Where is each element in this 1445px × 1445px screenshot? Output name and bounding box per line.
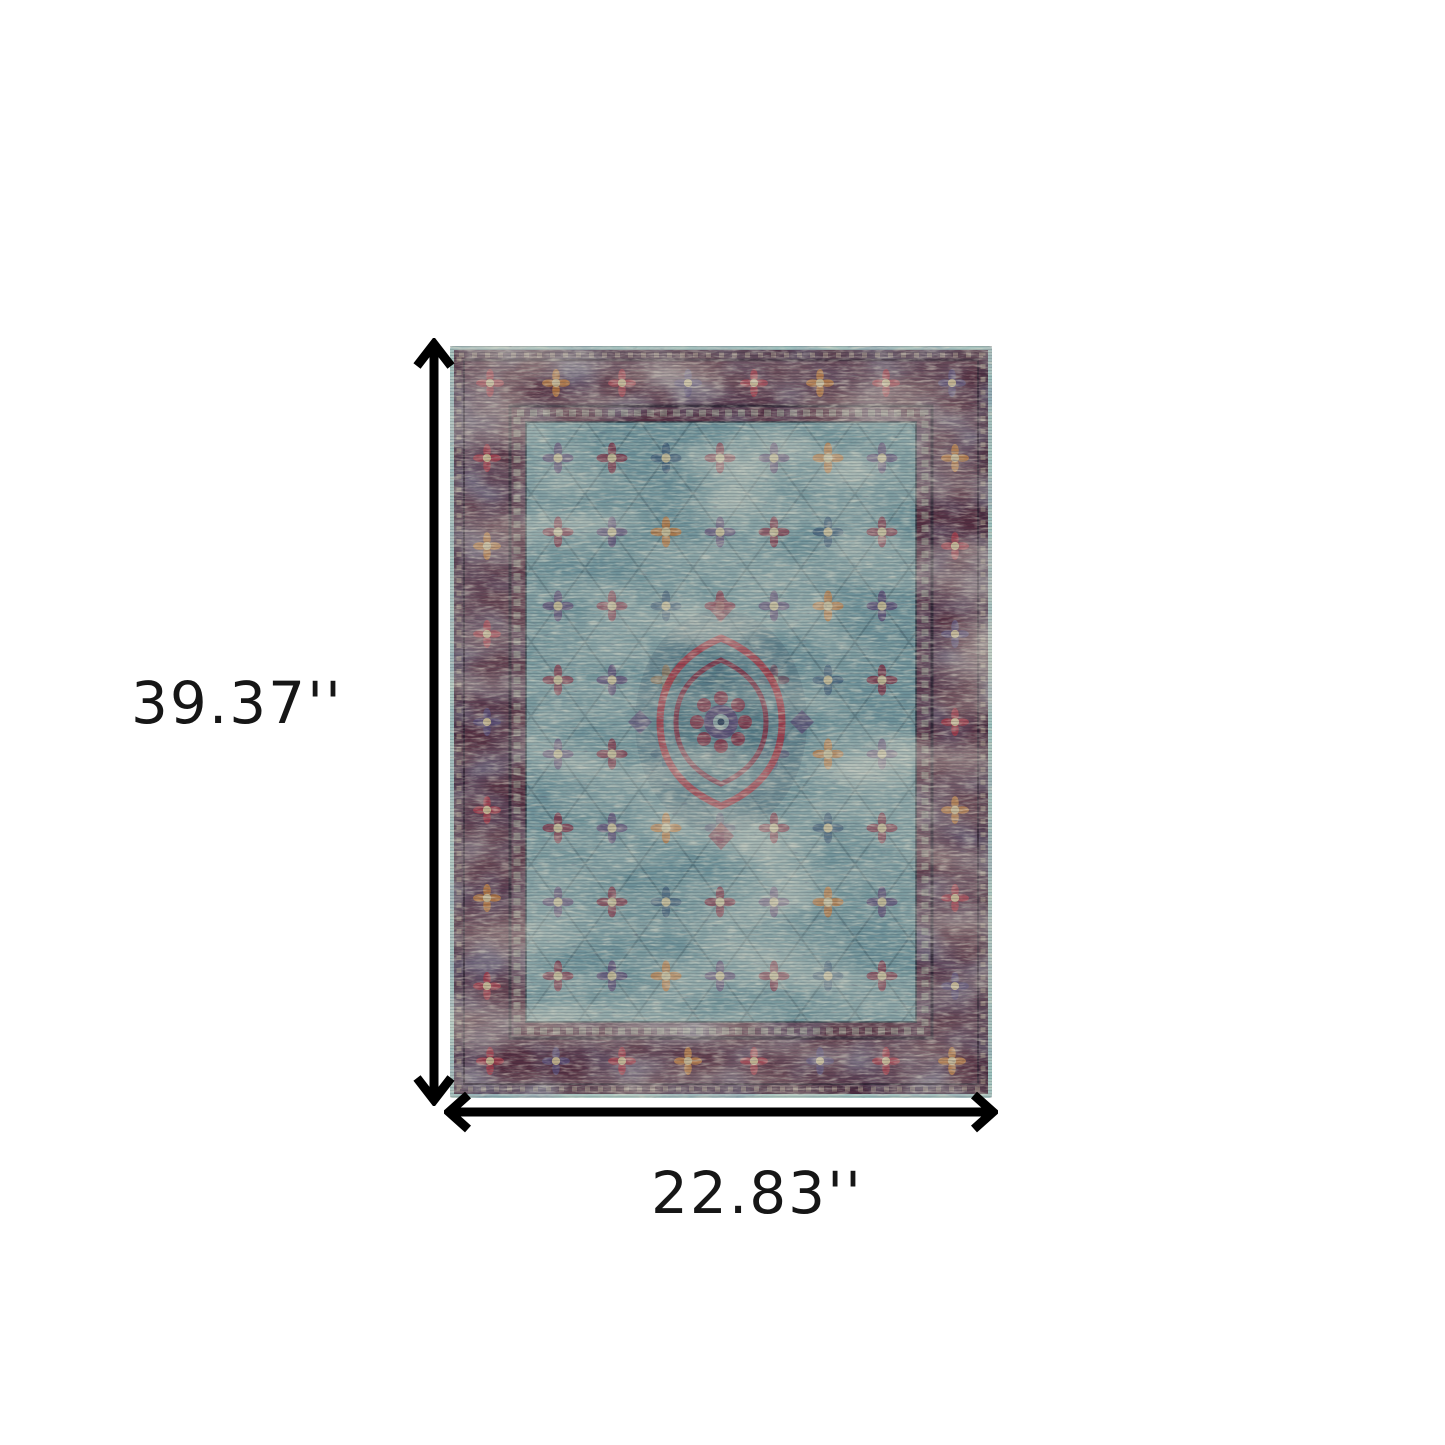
width-dimension-arrow [444, 1090, 998, 1134]
height-dimension-arrow [412, 338, 456, 1106]
height-dimension-label: 39.37'' [102, 670, 372, 737]
rug-product-image [450, 346, 992, 1098]
product-dimension-diagram: 39.37'' 22.83'' [0, 0, 1445, 1445]
rug-illustration [450, 346, 992, 1098]
width-dimension-label: 22.83'' [622, 1160, 892, 1227]
